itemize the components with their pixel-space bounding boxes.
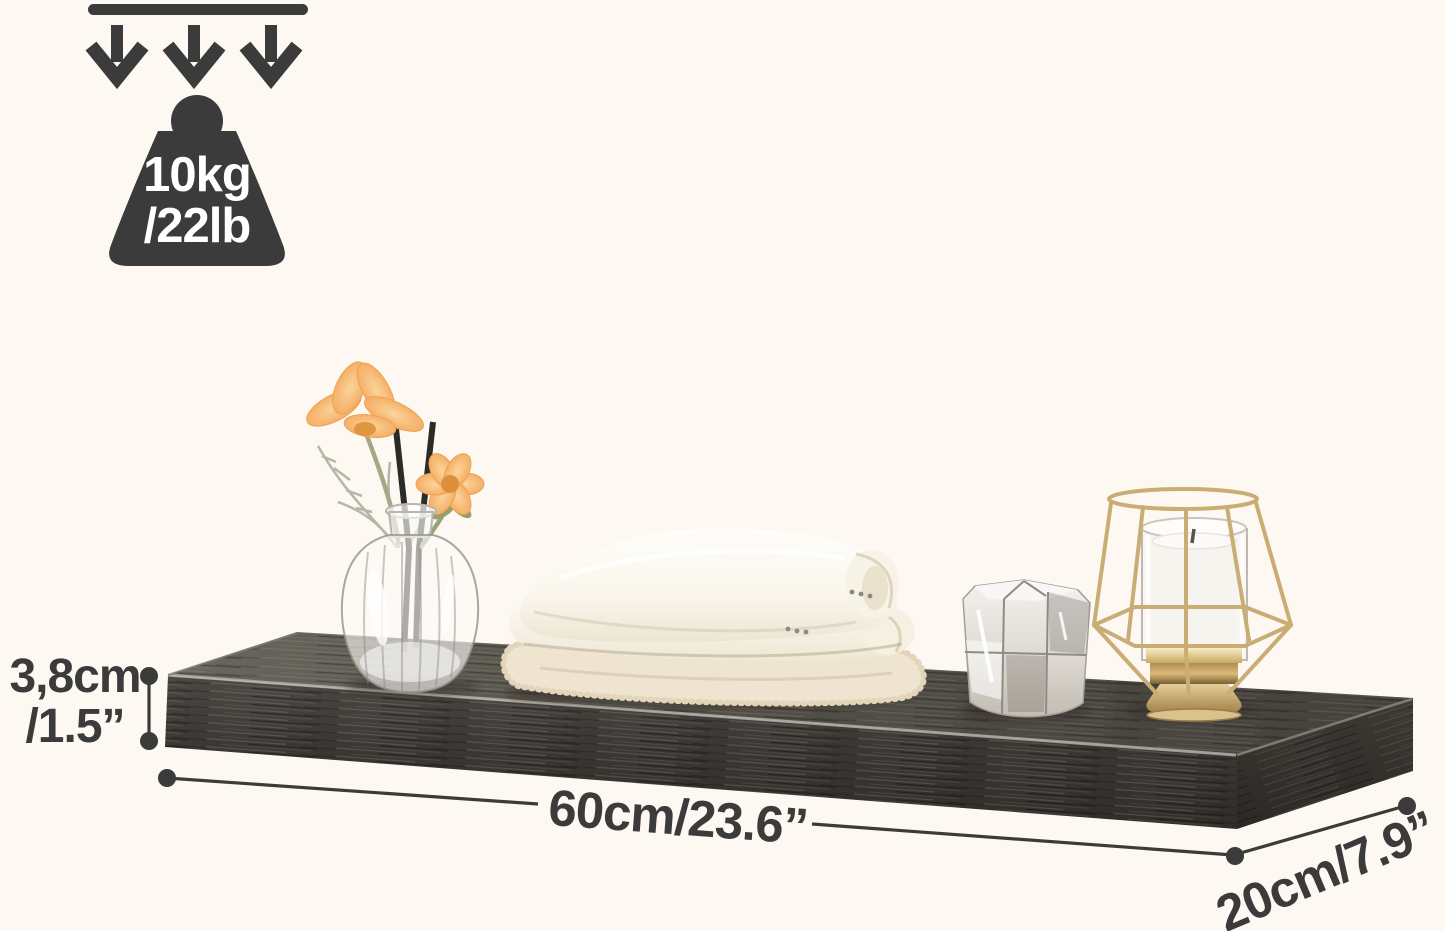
load-bar-icon xyxy=(88,4,308,15)
length-dimension-line-left xyxy=(167,778,538,804)
weight-capacity-kg: 10kg xyxy=(143,148,251,202)
lantern-base xyxy=(1146,648,1242,721)
product-dimension-image: 10kg /22lb 3,8cm /1.5” 60cm/23.6” 20cm/7… xyxy=(0,0,1445,931)
height-dimension-label: 3,8cm /1.5” xyxy=(0,652,150,752)
down-arrows-icon xyxy=(91,25,297,78)
towel-stack xyxy=(503,529,923,704)
height-metric: 3,8cm xyxy=(0,652,150,702)
crystal-tealight-holder xyxy=(963,580,1090,717)
glass-vase xyxy=(342,504,478,692)
length-dimension-line-right xyxy=(812,824,1233,855)
weight-capacity-icon: 10kg /22lb xyxy=(88,4,308,266)
height-imperial: /1.5” xyxy=(0,702,150,752)
weight-capacity-lb: /22lb xyxy=(144,199,251,253)
orange-flower-large xyxy=(301,357,428,441)
candle-wick xyxy=(1192,529,1194,543)
